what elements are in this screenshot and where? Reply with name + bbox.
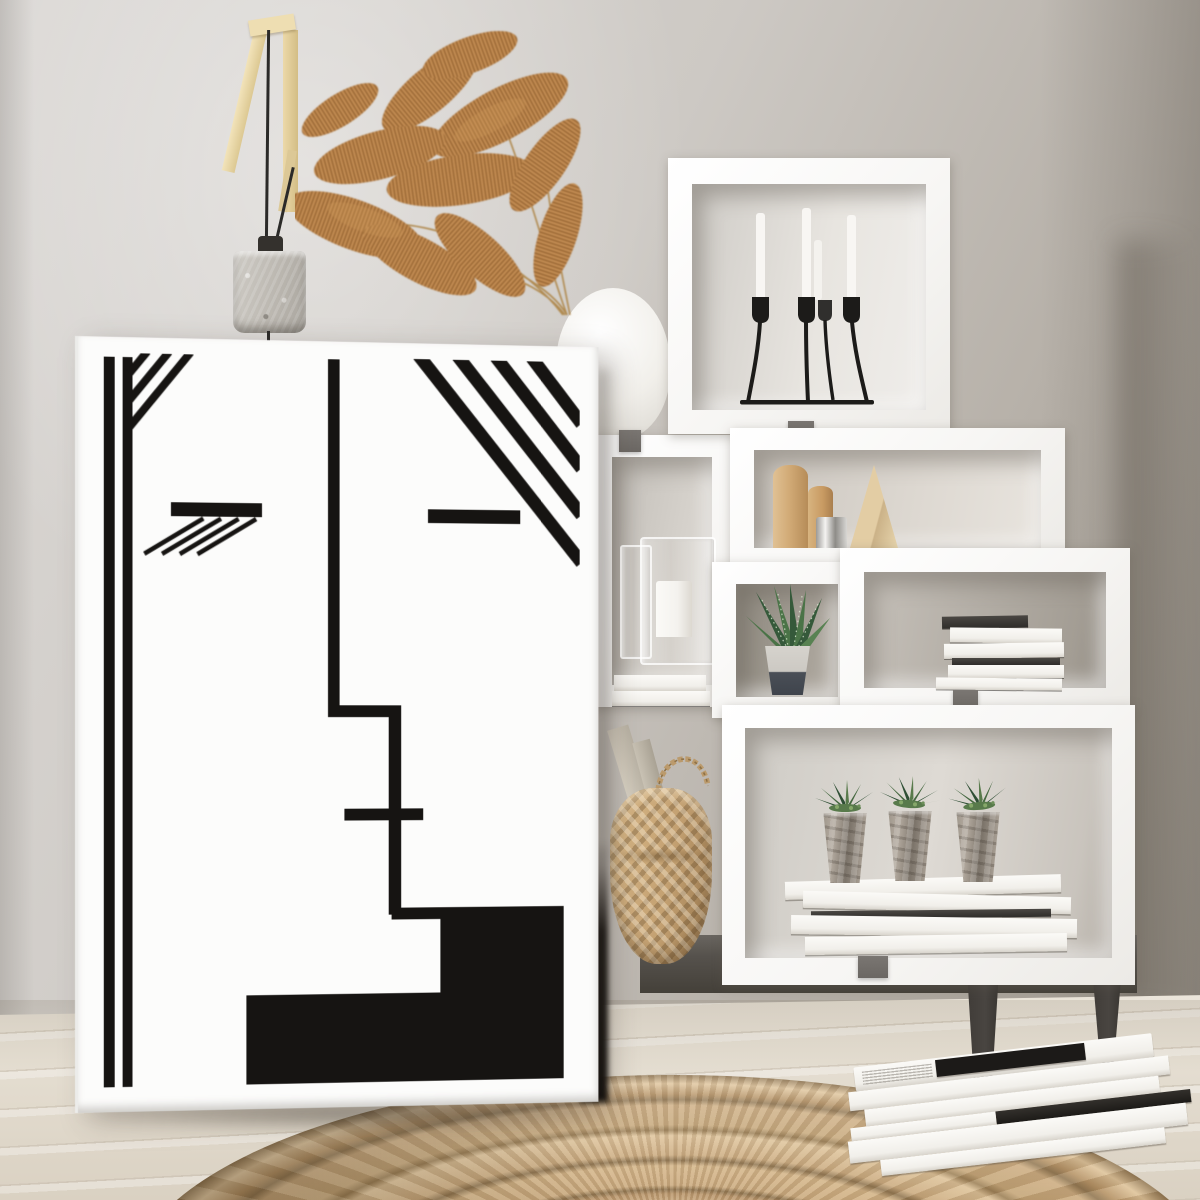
pampas-plumes [295, 21, 593, 309]
left-eye-lashes [144, 518, 256, 555]
shelf-book [952, 658, 1060, 665]
concrete-pot [951, 812, 1005, 882]
pampas-grass [295, 15, 645, 355]
top-left-hatch [130, 351, 191, 428]
succulents [805, 776, 1035, 822]
candelabra [692, 184, 926, 410]
basket-waist-shadow [614, 848, 708, 864]
poster-artwork [75, 336, 598, 1113]
wall-left-corner-shade [0, 0, 40, 1060]
aloe-plant [738, 584, 838, 654]
cube-books-interior [864, 572, 1106, 688]
cube-succulents-interior [745, 728, 1112, 958]
taper-candle-back [814, 240, 822, 300]
right-eye-bar [428, 509, 520, 524]
pillar-candle [656, 581, 692, 637]
left-eye-bar [171, 502, 262, 517]
magazine [805, 933, 1067, 955]
white-book [614, 675, 706, 691]
line-art [104, 349, 582, 1088]
shelf-book [950, 627, 1062, 643]
shelf-cube-succulents [722, 705, 1135, 985]
cube-wood-interior [754, 450, 1041, 548]
mouth-bar [344, 808, 423, 820]
shelf-book [944, 642, 1064, 659]
concrete-pot [818, 813, 872, 883]
plywood-cone [850, 465, 898, 548]
wood-cylinder-large [773, 465, 808, 548]
shelf-book [948, 665, 1064, 678]
cube-candles-interior [692, 184, 926, 410]
edge-stripe-2 [123, 357, 133, 1087]
basket-body [610, 788, 712, 964]
interior-photo-scene [0, 0, 1200, 1200]
connector-tab [619, 430, 641, 452]
aloe-two-tone-pot [762, 646, 813, 695]
poster-edge-shadow [598, 370, 614, 860]
chrome-cup [816, 517, 847, 548]
black-step-block [246, 906, 563, 1085]
nose-line [328, 359, 401, 915]
shelf-cube-aloe [712, 562, 860, 718]
white-book [612, 691, 710, 706]
top-right-hatch [418, 355, 581, 563]
abstract-face-poster [75, 336, 598, 1113]
cube-aloe-interior [736, 584, 838, 697]
edge-stripe-1 [104, 357, 115, 1088]
shelf-cube-wood-objects [730, 428, 1065, 568]
shelf-cube-candles [668, 158, 950, 434]
cube-glass-interior [612, 457, 712, 685]
shelf-cube-books [840, 548, 1130, 712]
shelf-book [936, 677, 1062, 690]
connector-tab [858, 956, 888, 978]
